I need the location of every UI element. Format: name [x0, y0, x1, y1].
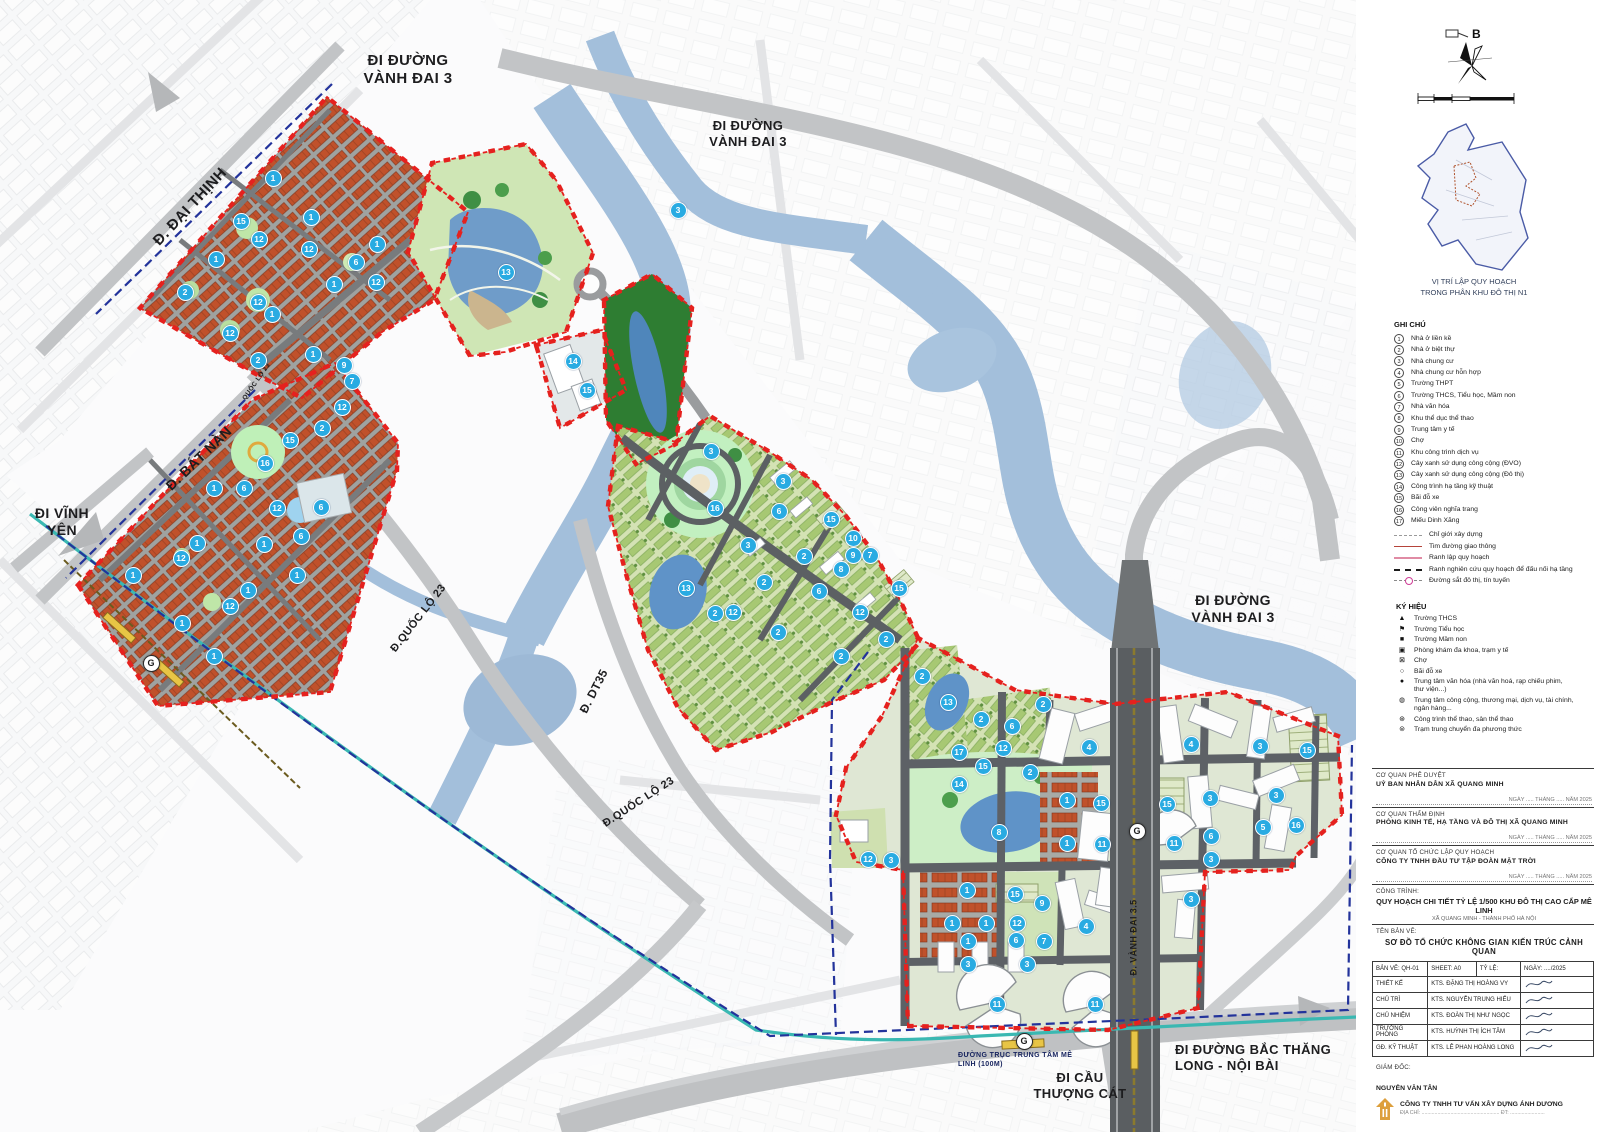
- table-name: KTS. NGUYỄN TRUNG HIẾU: [1428, 992, 1521, 1008]
- symbol-item: ⊜Trạm trung chuyển đa phương thức: [1396, 726, 1596, 734]
- symbol-item: ⊛Công trình thể thao, sân thể thao: [1396, 716, 1596, 724]
- symbol-label: Trường Mầm non: [1414, 636, 1467, 644]
- legend-lines: Chỉ giới xây dựngTim đường giao thôngRan…: [1394, 530, 1594, 587]
- legend-item-number: 1: [1394, 334, 1404, 344]
- project-label: CÔNG TRÌNH:: [1376, 888, 1592, 895]
- legend-item-number: 14: [1394, 482, 1404, 492]
- legend-line-item: Ranh lập quy hoạch: [1394, 552, 1594, 563]
- legend-item: 5Trường THPT: [1394, 379, 1594, 390]
- legend-item-number: 12: [1394, 459, 1404, 469]
- legend-item-number: 4: [1394, 368, 1404, 378]
- table-role: THIẾT KẾ: [1373, 976, 1428, 992]
- symbols-legend: KÝ HIỆU ▲Trường THCS⚑Trường Tiểu học■Trư…: [1396, 602, 1596, 737]
- symbol-label: Phòng khám đa khoa, trạm y tế: [1414, 647, 1508, 655]
- legend-item-number: 13: [1394, 470, 1404, 480]
- legend-item-number: 11: [1394, 448, 1404, 458]
- symbol-glyph: ○: [1396, 668, 1408, 676]
- north-compass: B: [1442, 22, 1496, 94]
- location-inset-map: [1396, 120, 1546, 278]
- legend-line-label: Đường sắt đô thị, tín tuyến: [1429, 577, 1510, 585]
- legend-item-label: Khu công trình dịch vụ: [1411, 449, 1479, 457]
- legend-item-number: 3: [1394, 356, 1404, 366]
- symbol-item: ▲Trường THCS: [1396, 615, 1596, 623]
- legend-item: 3Nhà chung cư: [1394, 356, 1594, 367]
- table-role: TRƯỞNG PHÒNG: [1373, 1024, 1428, 1040]
- legend-item: 15Bãi đỗ xe: [1394, 492, 1594, 503]
- agency2-label: CƠ QUAN THẨM ĐỊNH: [1376, 811, 1592, 818]
- legend-item-label: Cây xanh sử dụng công cộng (Đô thị): [1411, 471, 1524, 479]
- signature-line: NGÀY ..... THÁNG ..... NĂM 2025: [1376, 797, 1592, 805]
- director-name: NGUYỄN VĂN TÂN: [1376, 1085, 1592, 1092]
- table-role: GĐ. KỸ THUẬT: [1373, 1040, 1428, 1056]
- legend-item: 7Nhà văn hóa: [1394, 401, 1594, 412]
- legend-line-sample-research: [1394, 569, 1422, 571]
- symbol-item: ■Trường Mầm non: [1396, 636, 1596, 644]
- legend-item-label: Nhà chung cư: [1411, 358, 1454, 366]
- legend-item: 11Khu công trình dịch vụ: [1394, 447, 1594, 458]
- table-name: KTS. HUỲNH THỊ ÍCH TÂM: [1428, 1024, 1521, 1040]
- symbol-label: Trung tâm công cộng, thương mại, dịch vụ…: [1414, 697, 1574, 713]
- company-logo: [1376, 1098, 1394, 1120]
- north-label: B: [1472, 27, 1481, 41]
- symbol-label: Trường THCS: [1414, 615, 1457, 623]
- legend-line-sample-rail: [1394, 580, 1422, 581]
- company-address: ĐỊA CHỈ: ...............................…: [1400, 1110, 1563, 1116]
- project-location: XÃ QUANG MINH - THÀNH PHỐ HÀ NỘI: [1376, 916, 1592, 922]
- inset-caption-line2: TRONG PHÂN KHU ĐÔ THỊ N1: [1364, 287, 1584, 298]
- table-col3: TỶ LỆ:: [1476, 961, 1520, 976]
- legend-item: 9Trung tâm y tế: [1394, 424, 1594, 435]
- symbol-label: Trung tâm văn hóa (nhà văn hoá, rạp chiế…: [1414, 678, 1574, 694]
- company-name: CÔNG TY TNHH TƯ VẤN XÂY DỰNG ÁNH DƯƠNG: [1400, 1101, 1563, 1108]
- symbol-glyph: ⊠: [1396, 657, 1408, 665]
- symbol-item: ◍Trung tâm công cộng, thương mại, dịch v…: [1396, 697, 1596, 713]
- symbol-glyph: ●: [1396, 678, 1408, 686]
- legend-line-label: Chỉ giới xây dựng: [1429, 531, 1483, 539]
- legend-item-label: Công viên nghĩa trang: [1411, 506, 1478, 514]
- approve-value: UỶ BAN NHÂN DÂN XÃ QUANG MINH: [1376, 781, 1592, 788]
- title-block: CƠ QUAN PHÊ DUYỆT UỶ BAN NHÂN DÂN XÃ QUA…: [1372, 768, 1594, 1122]
- legend-item-number: 10: [1394, 436, 1404, 446]
- legend-item-number: 17: [1394, 516, 1404, 526]
- symbol-glyph: ⊛: [1396, 716, 1408, 724]
- symbol-label: Công trình thể thao, sân thể thao: [1414, 716, 1513, 724]
- legend-item-number: 16: [1394, 505, 1404, 515]
- table-name: KTS. LÊ PHAN HOÀNG LONG: [1428, 1040, 1521, 1056]
- legend-line-item: Chỉ giới xây dựng: [1394, 530, 1594, 541]
- symbol-glyph: ▲: [1396, 615, 1408, 623]
- right-panel: B VỊ TRÍ LẬP QUY HOẠCH TRONG PHÂN K: [1356, 0, 1600, 1132]
- symbol-item: ○Bãi đỗ xe: [1396, 668, 1596, 676]
- project-title: QUY HOẠCH CHI TIẾT TỶ LỆ 1/500 KHU ĐÔ TH…: [1376, 897, 1592, 915]
- agency3-value: CÔNG TY TNHH ĐẦU TƯ TẬP ĐOÀN MẶT TRỜI: [1376, 858, 1592, 865]
- agency3-label: CƠ QUAN TỔ CHỨC LẬP QUY HOẠCH: [1376, 849, 1592, 856]
- symbol-label: Bãi đỗ xe: [1414, 668, 1442, 676]
- table-col2: SHEET: A0: [1428, 961, 1477, 976]
- symbol-label: Trường Tiểu học: [1414, 626, 1464, 634]
- legend-item: 2Nhà ở biệt thự: [1394, 344, 1594, 355]
- table-signature: [1521, 1040, 1594, 1056]
- legend-item-label: Bãi đỗ xe: [1411, 494, 1439, 502]
- symbol-glyph: ◍: [1396, 697, 1408, 705]
- legend-item: 1Nhà ở liền kề: [1394, 333, 1594, 344]
- symbol-item: ▣Phòng khám đa khoa, trạm y tế: [1396, 647, 1596, 655]
- table-signature: [1521, 1024, 1594, 1040]
- table-col4: NGÀY: ..../2025: [1521, 961, 1594, 976]
- symbol-glyph: ▣: [1396, 647, 1408, 655]
- symbol-label: Trạm trung chuyển đa phương thức: [1414, 726, 1522, 734]
- symbol-item: ⊠Chợ: [1396, 657, 1596, 665]
- legend-item: 10Chợ: [1394, 436, 1594, 447]
- legend-line-sample-road-axis: [1394, 546, 1422, 547]
- signature-line: NGÀY ..... THÁNG ..... NĂM 2025: [1376, 835, 1592, 843]
- legend-item: 16Công viên nghĩa trang: [1394, 504, 1594, 515]
- legend-title: GHI CHÚ: [1394, 320, 1594, 329]
- signature-line: NGÀY ..... THÁNG ..... NĂM 2025: [1376, 874, 1592, 882]
- legend-line-label: Tim đường giao thông: [1429, 543, 1496, 551]
- symbol-glyph: ■: [1396, 636, 1408, 644]
- table-name: KTS. ĐẶNG THỊ HOÀNG VY: [1428, 976, 1521, 992]
- legend-line-item: Ranh nghiên cứu quy hoạch để đấu nối hạ …: [1394, 564, 1594, 575]
- legend-item-label: Trung tâm y tế: [1411, 426, 1455, 434]
- legend-item-label: Cây xanh sử dụng công cộng (ĐVO): [1411, 460, 1521, 468]
- legend-item: 17Miếu Dinh Xăng: [1394, 515, 1594, 526]
- legend-item-number: 5: [1394, 379, 1404, 389]
- table-role: CHỦ TRÌ: [1373, 992, 1428, 1008]
- legend-item-label: Nhà ở liền kề: [1411, 335, 1451, 343]
- drawing-title: SƠ ĐỒ TỔ CHỨC KHÔNG GIAN KIẾN TRÚC CẢNH …: [1376, 938, 1592, 956]
- legend-item-number: 15: [1394, 493, 1404, 503]
- table-signature: [1521, 992, 1594, 1008]
- legend-item-label: Chợ: [1411, 437, 1424, 445]
- scale-bar: [1416, 90, 1526, 106]
- table-row: CHỦ TRÌKTS. NGUYỄN TRUNG HIẾU: [1373, 992, 1594, 1008]
- table-name: KTS. ĐOÀN THỊ NHƯ NGỌC: [1428, 1008, 1521, 1024]
- symbol-label: Chợ: [1414, 657, 1427, 665]
- legend-item-label: Công trình hạ tầng kỹ thuật: [1411, 483, 1493, 491]
- symbols-items: ▲Trường THCS⚑Trường Tiểu học■Trường Mầm …: [1396, 615, 1596, 734]
- legend-item: 4Nhà chung cư hỗn hợp: [1394, 367, 1594, 378]
- table-row: THIẾT KẾKTS. ĐẶNG THỊ HOÀNG VY: [1373, 976, 1594, 992]
- symbol-glyph: ⚑: [1396, 626, 1408, 634]
- approve-label: CƠ QUAN PHÊ DUYỆT: [1376, 772, 1592, 779]
- table-signature: [1521, 976, 1594, 992]
- legend-item: 8Khu thể dục thể thao: [1394, 413, 1594, 424]
- legend-line-item: Đường sắt đô thị, tín tuyến: [1394, 575, 1594, 586]
- legend-line-label: Ranh nghiên cứu quy hoạch để đấu nối hạ …: [1429, 566, 1573, 574]
- legend-item-label: Trường THCS, Tiểu học, Mầm non: [1411, 392, 1516, 400]
- drawing-label: TÊN BẢN VẼ:: [1376, 928, 1592, 935]
- cemetery-park: [231, 425, 285, 479]
- legend: GHI CHÚ 1Nhà ở liền kề2Nhà ở biệt thự3Nh…: [1394, 320, 1594, 587]
- legend-item-number: 6: [1394, 391, 1404, 401]
- legend-item-number: 9: [1394, 425, 1404, 435]
- legend-item-number: 8: [1394, 413, 1404, 423]
- symbols-title: KÝ HIỆU: [1396, 602, 1596, 611]
- legend-item-label: Nhà ở biệt thự: [1411, 346, 1455, 354]
- legend-line-sample-construction: [1394, 535, 1422, 536]
- legend-item-label: Trường THPT: [1411, 380, 1453, 388]
- table-row: CHỦ NHIỆMKTS. ĐOÀN THỊ NHƯ NGỌC: [1373, 1008, 1594, 1024]
- legend-line-label: Ranh lập quy hoạch: [1429, 554, 1489, 562]
- symbol-item: ⚑Trường Tiểu học: [1396, 626, 1596, 634]
- legend-item-label: Nhà chung cư hỗn hợp: [1411, 369, 1481, 377]
- drawing-info-table: BẢN VẼ: QH-01 SHEET: A0 TỶ LỆ: NGÀY: ...…: [1372, 961, 1594, 1057]
- symbol-item: ●Trung tâm văn hóa (nhà văn hoá, rạp chi…: [1396, 678, 1596, 694]
- table-row: GĐ. KỸ THUẬTKTS. LÊ PHAN HOÀNG LONG: [1373, 1040, 1594, 1056]
- legend-item: 12Cây xanh sử dụng công cộng (ĐVO): [1394, 458, 1594, 469]
- legend-item: 13Cây xanh sử dụng công cộng (Đô thị): [1394, 470, 1594, 481]
- legend-items: 1Nhà ở liền kề2Nhà ở biệt thự3Nhà chung …: [1394, 333, 1594, 527]
- legend-line-sample-planning: [1394, 557, 1422, 559]
- agency2-value: PHÒNG KINH TẾ, HẠ TẦNG VÀ ĐÔ THỊ XÃ QUAN…: [1376, 819, 1592, 826]
- table-row: TRƯỞNG PHÒNGKTS. HUỲNH THỊ ÍCH TÂM: [1373, 1024, 1594, 1040]
- legend-item-label: Miếu Dinh Xăng: [1411, 517, 1459, 525]
- inset-caption: VỊ TRÍ LẬP QUY HOẠCH TRONG PHÂN KHU ĐÔ T…: [1364, 276, 1584, 299]
- legend-item-number: 7: [1394, 402, 1404, 412]
- legend-item-label: Nhà văn hóa: [1411, 403, 1450, 411]
- road-vanh-dai-3-5: [1110, 560, 1160, 1132]
- legend-line-item: Tim đường giao thông: [1394, 541, 1594, 552]
- planning-map-page: ĐI ĐƯỜNG VÀNH ĐAI 3ĐI ĐƯỜNG VÀNH ĐAI 3ĐI…: [0, 0, 1600, 1132]
- legend-item-number: 2: [1394, 345, 1404, 355]
- director-label: GIÁM ĐỐC:: [1376, 1064, 1592, 1071]
- metro-platform: [1131, 1031, 1138, 1069]
- symbol-glyph: ⊜: [1396, 726, 1408, 734]
- legend-item: 14Công trình hạ tầng kỹ thuật: [1394, 481, 1594, 492]
- inset-caption-line1: VỊ TRÍ LẬP QUY HOẠCH: [1364, 276, 1584, 287]
- table-col1: BẢN VẼ: QH-01: [1373, 961, 1428, 976]
- table-role: CHỦ NHIỆM: [1373, 1008, 1428, 1024]
- legend-item-label: Khu thể dục thể thao: [1411, 415, 1474, 423]
- legend-item: 6Trường THCS, Tiểu học, Mầm non: [1394, 390, 1594, 401]
- table-signature: [1521, 1008, 1594, 1024]
- zone-central-park-north: [408, 144, 593, 356]
